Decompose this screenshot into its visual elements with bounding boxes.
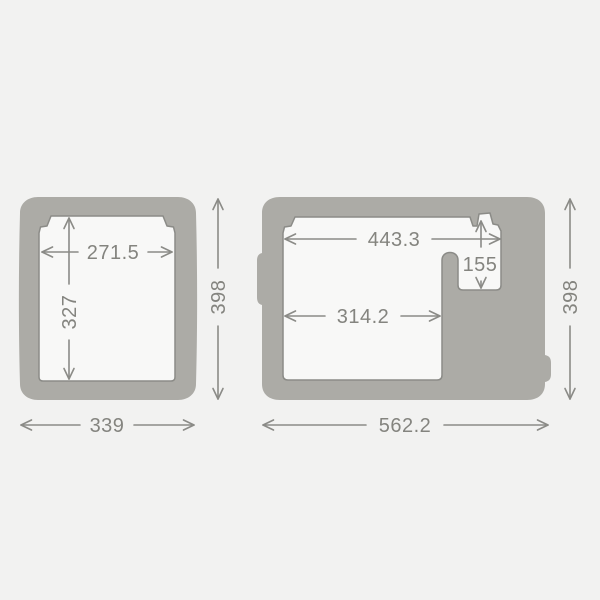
dimension-label-outer-width: 339	[90, 415, 125, 437]
dimension-label-inner-height: 327	[59, 295, 81, 330]
dimension-diagram-page: 271.5 327 398 339	[0, 0, 600, 600]
dimension-label-compartment-depth: 155	[463, 254, 498, 276]
left-view: 271.5 327 398 339	[19, 197, 230, 437]
dim-right-outer-width: 562.2	[263, 415, 548, 437]
dimension-label-outer-height: 398	[208, 280, 230, 315]
dimension-label-opening-width: 443.3	[368, 229, 421, 251]
dimension-label-outer-height: 398	[560, 280, 582, 315]
dimension-label-inner-width: 271.5	[87, 242, 140, 264]
dim-left-outer-width: 339	[21, 415, 194, 437]
dim-left-outer-height: 398	[208, 199, 230, 399]
right-view: 443.3 155 314.2 398	[257, 197, 582, 437]
dimension-label-outer-width: 562.2	[379, 415, 432, 437]
dimension-label-main-width: 314.2	[337, 306, 390, 328]
dim-right-outer-height: 398	[560, 199, 582, 399]
dimension-diagram: 271.5 327 398 339	[0, 0, 600, 600]
